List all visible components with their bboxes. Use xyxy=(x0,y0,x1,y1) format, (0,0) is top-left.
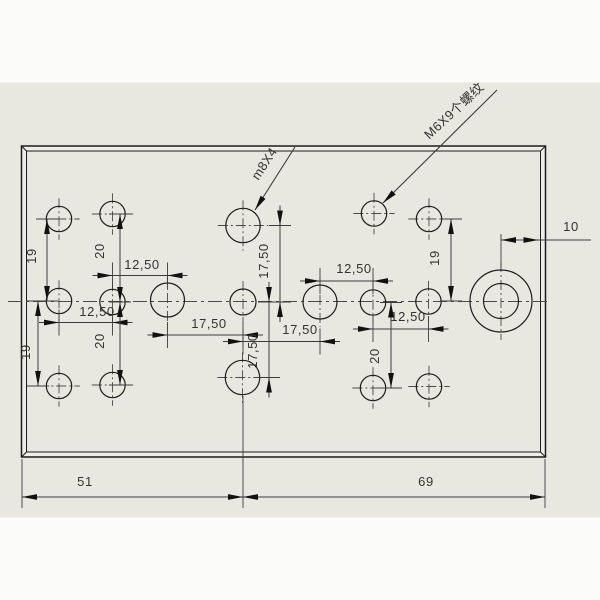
dimension-label: 12,50 xyxy=(390,309,426,324)
engineering-drawing: 12,5012,5017,5017,5012,5012,501920192019… xyxy=(0,0,600,600)
dimension-label: 17,50 xyxy=(282,322,318,337)
dimension-label: 19 xyxy=(427,250,442,266)
dimension-label: 17,50 xyxy=(191,316,227,331)
dimension-label: 20 xyxy=(92,243,107,259)
dimension-label: 17,50 xyxy=(256,243,271,279)
dimension-label: 17,50 xyxy=(245,333,260,369)
dimension-label: 20 xyxy=(92,333,107,349)
dimension-label: 51 xyxy=(77,474,93,489)
dimension-label: 12,50 xyxy=(79,304,115,319)
dimension-label: 19 xyxy=(18,344,33,360)
dimension-label: 69 xyxy=(418,474,434,489)
dimension-label: 12,50 xyxy=(124,257,160,272)
dimension-label: 20 xyxy=(367,348,382,364)
cad-viewport: 12,5012,5017,5017,5012,5012,501920192019… xyxy=(0,0,600,600)
dimension-label: 10 xyxy=(563,219,579,234)
dimension-label: 12,50 xyxy=(336,261,372,276)
dimension-label: 19 xyxy=(24,248,39,264)
